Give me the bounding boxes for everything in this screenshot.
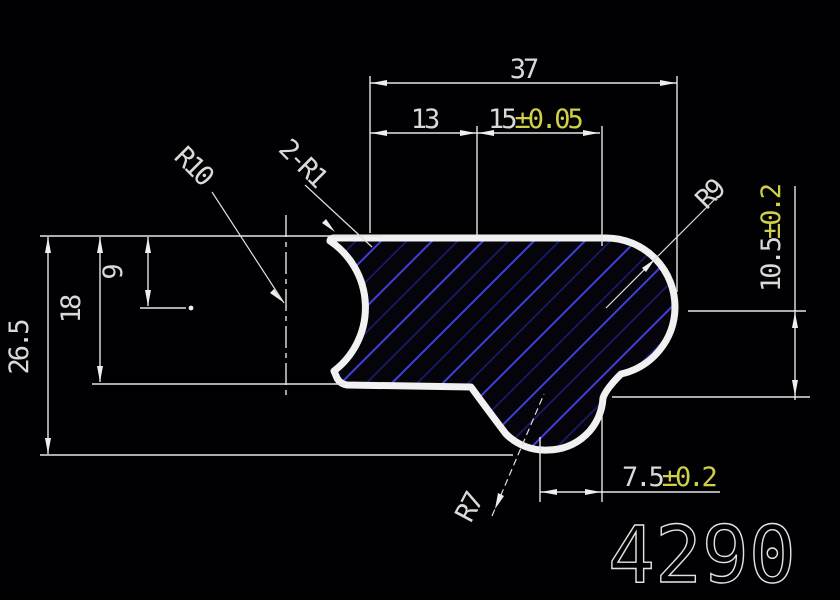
arrow-right-icon — [585, 489, 601, 495]
arrow-right-icon — [660, 80, 676, 86]
dim-right-height: 10.5±0.2 — [756, 185, 798, 400]
arrow-left-icon — [371, 80, 387, 86]
leader-2-r1: 2-R1 — [272, 133, 372, 247]
dim-total-width: 37 — [370, 54, 677, 86]
arrow-up-icon — [145, 237, 151, 253]
dim-mid-width: 15±0.05 — [478, 104, 599, 136]
dim-text-13: 13 — [411, 104, 439, 135]
dim-tolerance: ±0.2 — [756, 185, 787, 239]
radius-label-r9: R9 — [690, 173, 732, 215]
dim-text-15: 15±0.05 — [488, 104, 583, 135]
dim-total-height: 26.5 — [4, 237, 51, 454]
arrow-down-icon — [145, 290, 151, 306]
arrow-down-icon — [97, 366, 103, 382]
arrow-right-icon — [583, 130, 599, 136]
dim-text-10-5: 10.5±0.2 — [756, 185, 787, 292]
r10-center-dot — [189, 306, 194, 311]
dim-value: 10.5 — [756, 237, 787, 292]
arrow-right-icon — [460, 130, 476, 136]
dim-text-18: 18 — [56, 295, 87, 323]
dim-tolerance: ±0.05 — [515, 104, 583, 135]
dim-tolerance: ±0.2 — [662, 462, 716, 493]
leader-line — [212, 192, 284, 303]
part-section-outline — [330, 238, 675, 450]
dim-text-7-5: 7.5±0.2 — [622, 462, 716, 493]
arrow-down-left-icon — [495, 493, 504, 509]
dim-text-26-5: 26.5 — [4, 320, 35, 375]
arrow-down-icon — [792, 380, 798, 396]
cad-drawing-canvas: 37 13 15±0.05 26.5 18 9 10.5±0.2 — [0, 0, 840, 600]
drawing-number: 4290 — [608, 511, 796, 600]
arrow-down-icon — [45, 438, 51, 454]
arrow-down-right-icon — [322, 219, 335, 232]
dim-r10-depth: 9 — [98, 237, 151, 306]
arrow-left-icon — [541, 489, 557, 495]
radius-label-2-r1: 2-R1 — [272, 133, 333, 194]
arrow-up-icon — [97, 237, 103, 253]
dim-text-9: 9 — [98, 265, 129, 280]
dim-value: 15 — [488, 104, 516, 135]
leader-r10: R10 — [168, 141, 284, 303]
dim-bottom-width: 7.5±0.2 — [540, 462, 720, 495]
arrow-left-icon — [371, 130, 387, 136]
arrow-up-icon — [45, 237, 51, 253]
radius-label-r10: R10 — [168, 141, 219, 192]
dim-text-37: 37 — [510, 54, 538, 85]
radius-label-r7: R7 — [450, 487, 491, 527]
dim-value: 7.5 — [622, 462, 664, 493]
cad-viewport: 37 13 15±0.05 26.5 18 9 10.5±0.2 — [0, 0, 840, 600]
dim-body-height: 18 — [56, 237, 103, 382]
part-profile — [330, 238, 675, 450]
arrow-up-icon — [792, 312, 798, 328]
